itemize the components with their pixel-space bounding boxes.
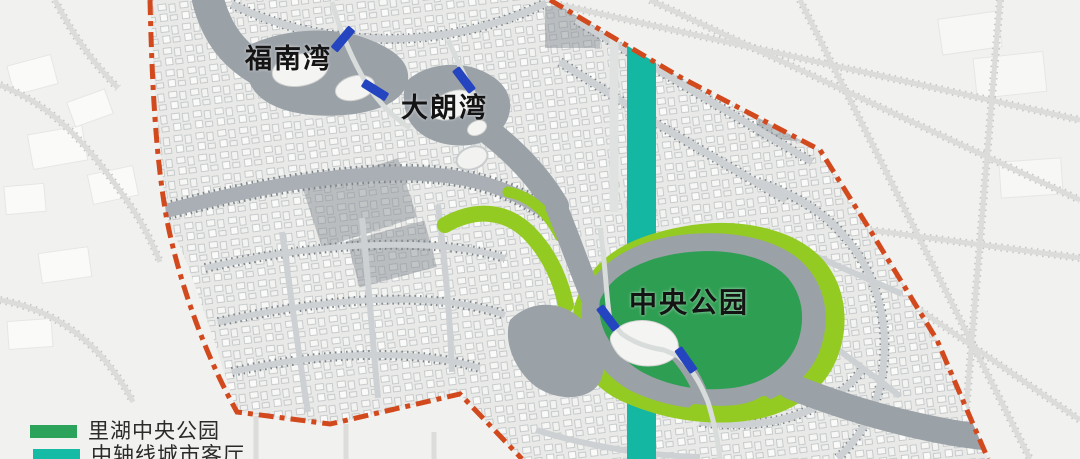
legend-label: 中轴线城市客厅: [91, 445, 245, 459]
legend-item-central-axis: 中轴线城市客厅: [33, 445, 245, 459]
label-funan-bay: 福南湾: [245, 46, 332, 73]
legend-swatch-park-green: [30, 425, 77, 438]
map-canvas: [0, 0, 1080, 459]
legend: 里湖中央公园 中轴线城市客厅: [30, 421, 245, 459]
label-central-park: 中央公园: [629, 289, 749, 317]
planning-map: 福南湾 大朗湾 中央公园 里湖中央公园 中轴线城市客厅: [0, 0, 1080, 459]
label-dalang-bay: 大朗湾: [401, 95, 488, 122]
legend-item-central-park: 里湖中央公园: [30, 421, 245, 441]
legend-swatch-axis-teal: [33, 449, 80, 459]
legend-label: 里湖中央公园: [88, 421, 220, 442]
